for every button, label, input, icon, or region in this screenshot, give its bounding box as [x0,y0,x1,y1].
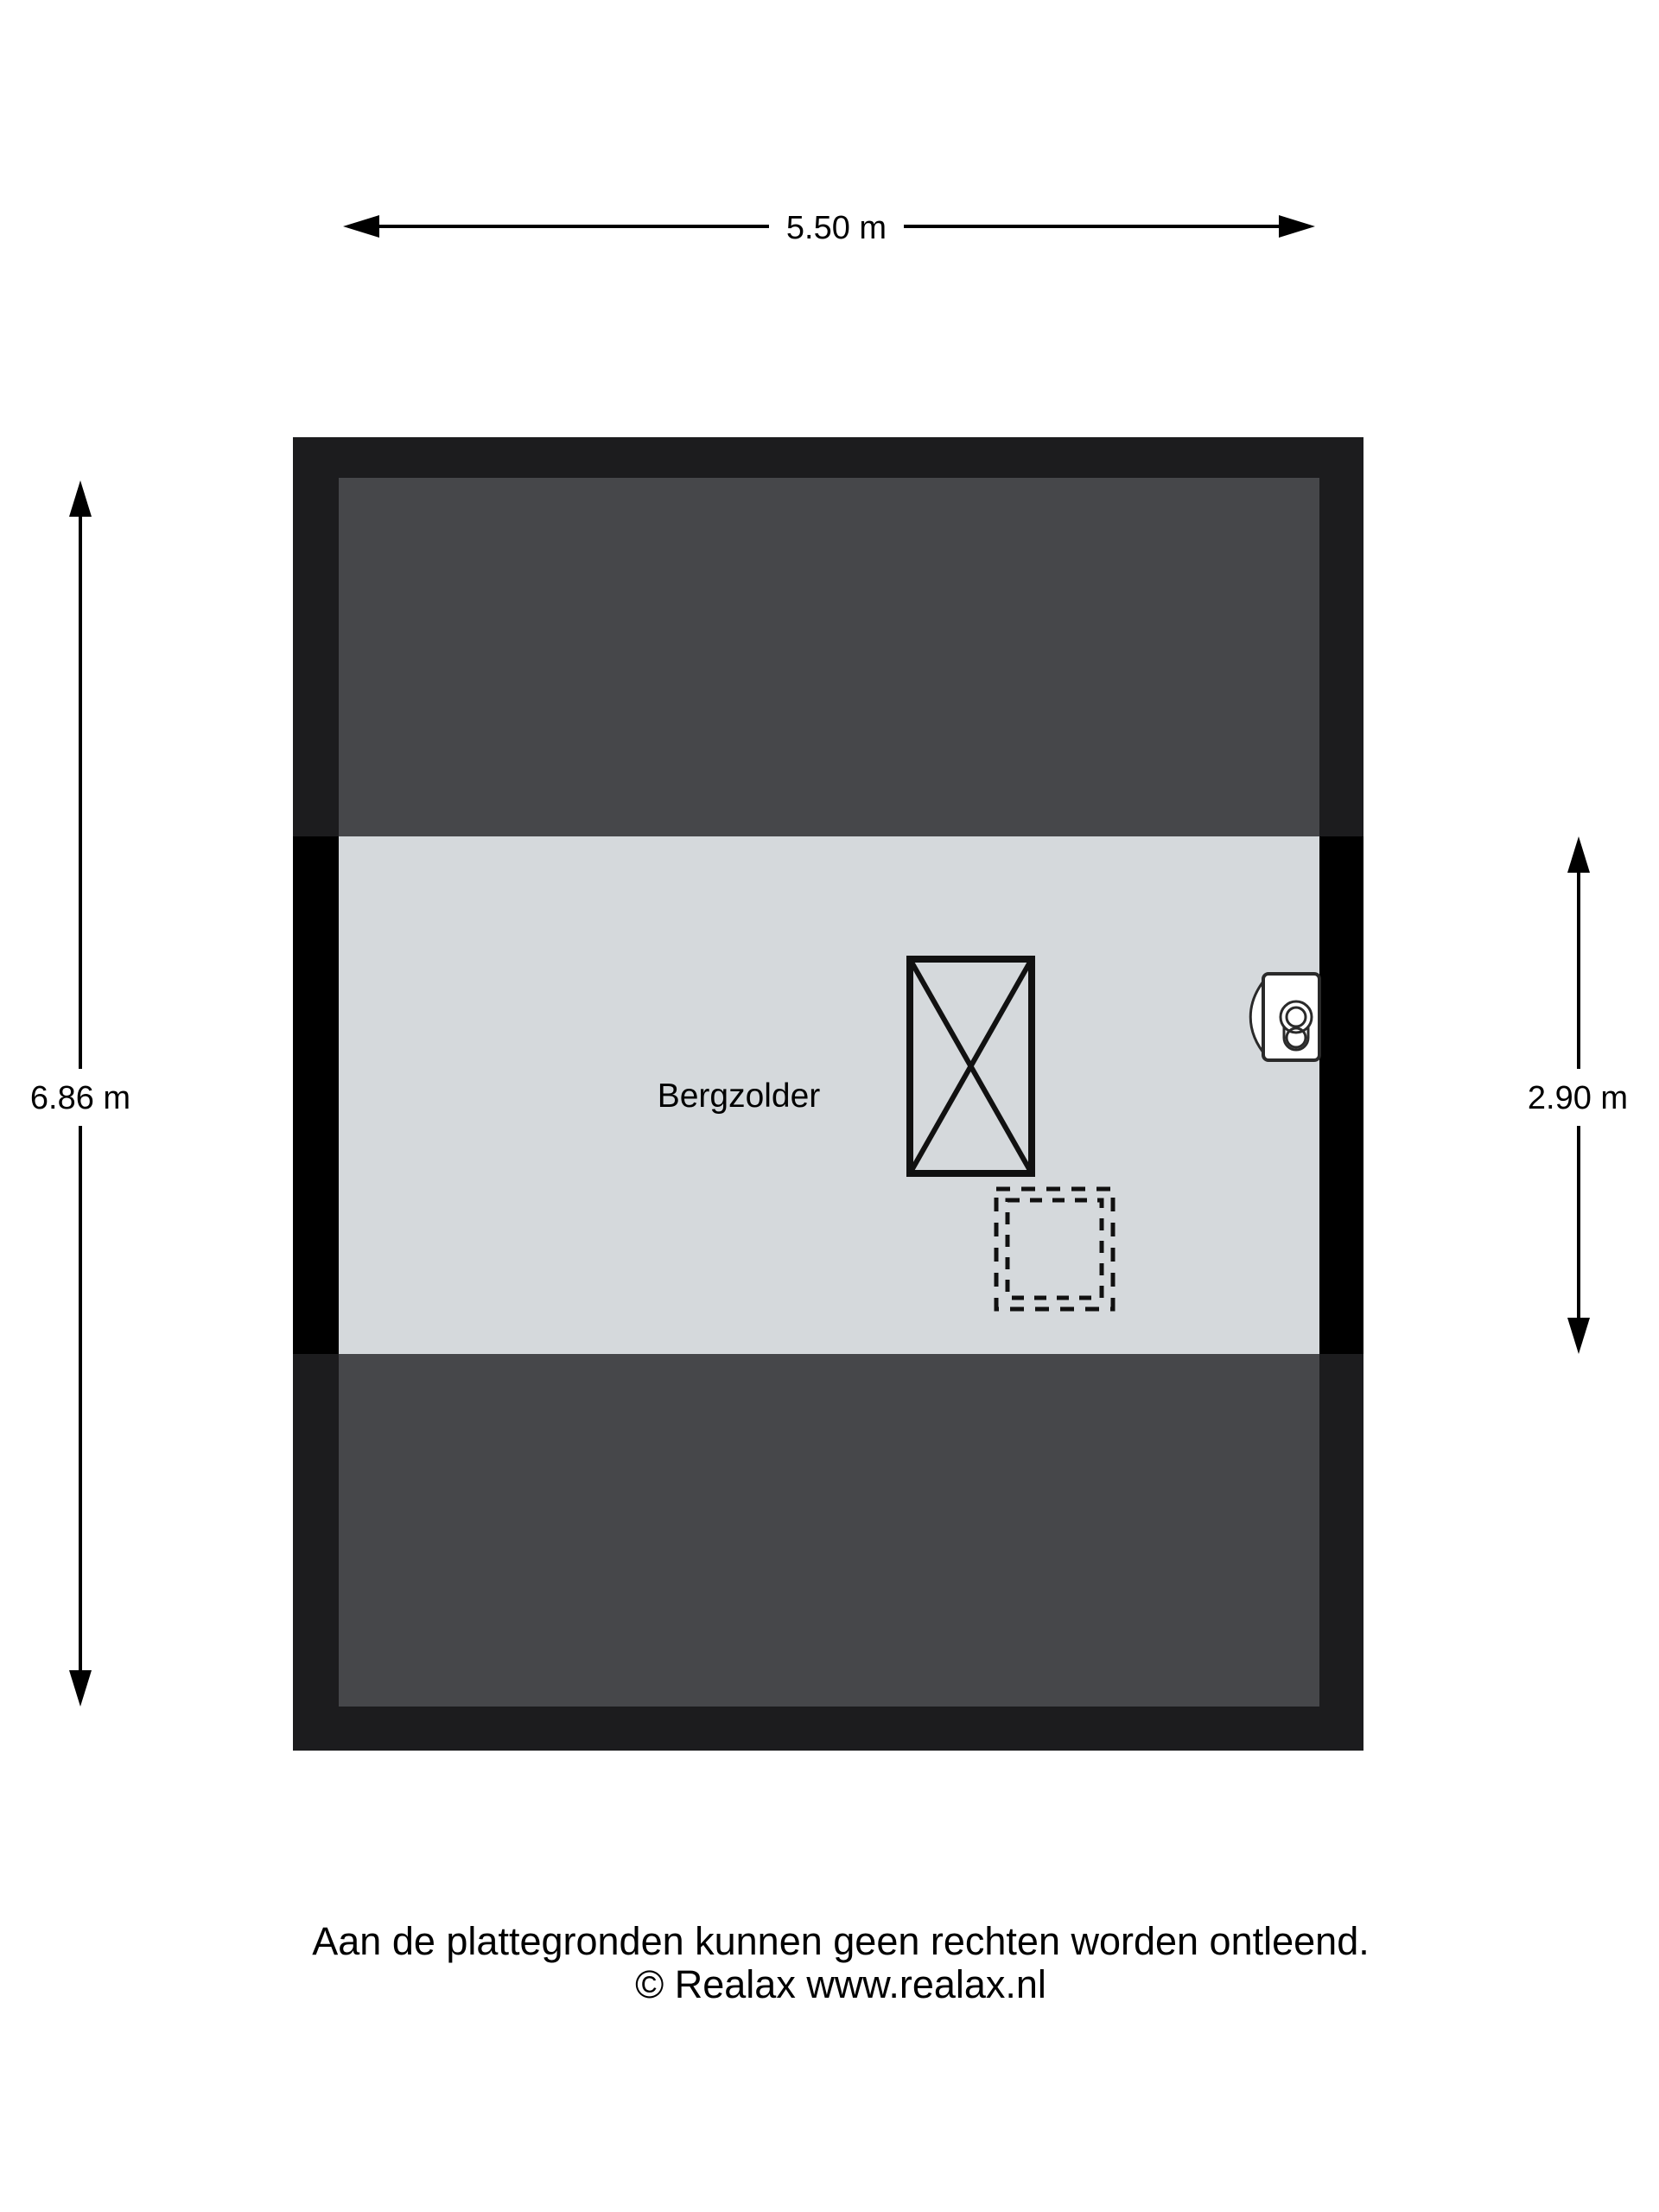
floor-area [339,836,1319,1354]
arrow-down-icon [69,1670,92,1707]
dimension-width: 5.50 m [343,210,1315,246]
side-wall-right [1319,836,1363,1354]
footer-copyright: © Realax www.realax.nl [0,1963,1659,2006]
dimension-height-label: 6.86 m [30,1080,130,1116]
room-label: Bergzolder [658,1077,821,1115]
arrow-up-icon [69,480,92,517]
floorplan-page: 5.50 m 6.86 m 2.90 m [0,0,1659,2212]
floorplan-body [293,437,1363,1751]
arrow-right-icon [1279,215,1315,238]
arrow-up-icon [1567,836,1590,873]
dimension-width-label: 5.50 m [786,210,887,246]
dimension-band-label: 2.90 m [1528,1080,1628,1116]
dimension-height: 6.86 m [30,480,130,1707]
sloped-roof-area-top [339,478,1319,836]
dimension-band: 2.90 m [1528,836,1628,1354]
footer: Aan de plattegronden kunnen geen rechten… [0,1920,1659,2007]
footer-disclaimer: Aan de plattegronden kunnen geen rechten… [0,1920,1659,1963]
sloped-roof-area-bottom [339,1354,1319,1707]
arrow-left-icon [343,215,379,238]
arrow-down-icon [1567,1318,1590,1354]
side-wall-left [293,836,339,1354]
floorplan-drawing: 5.50 m 6.86 m 2.90 m [0,0,1659,2212]
boiler-icon [1250,974,1319,1060]
